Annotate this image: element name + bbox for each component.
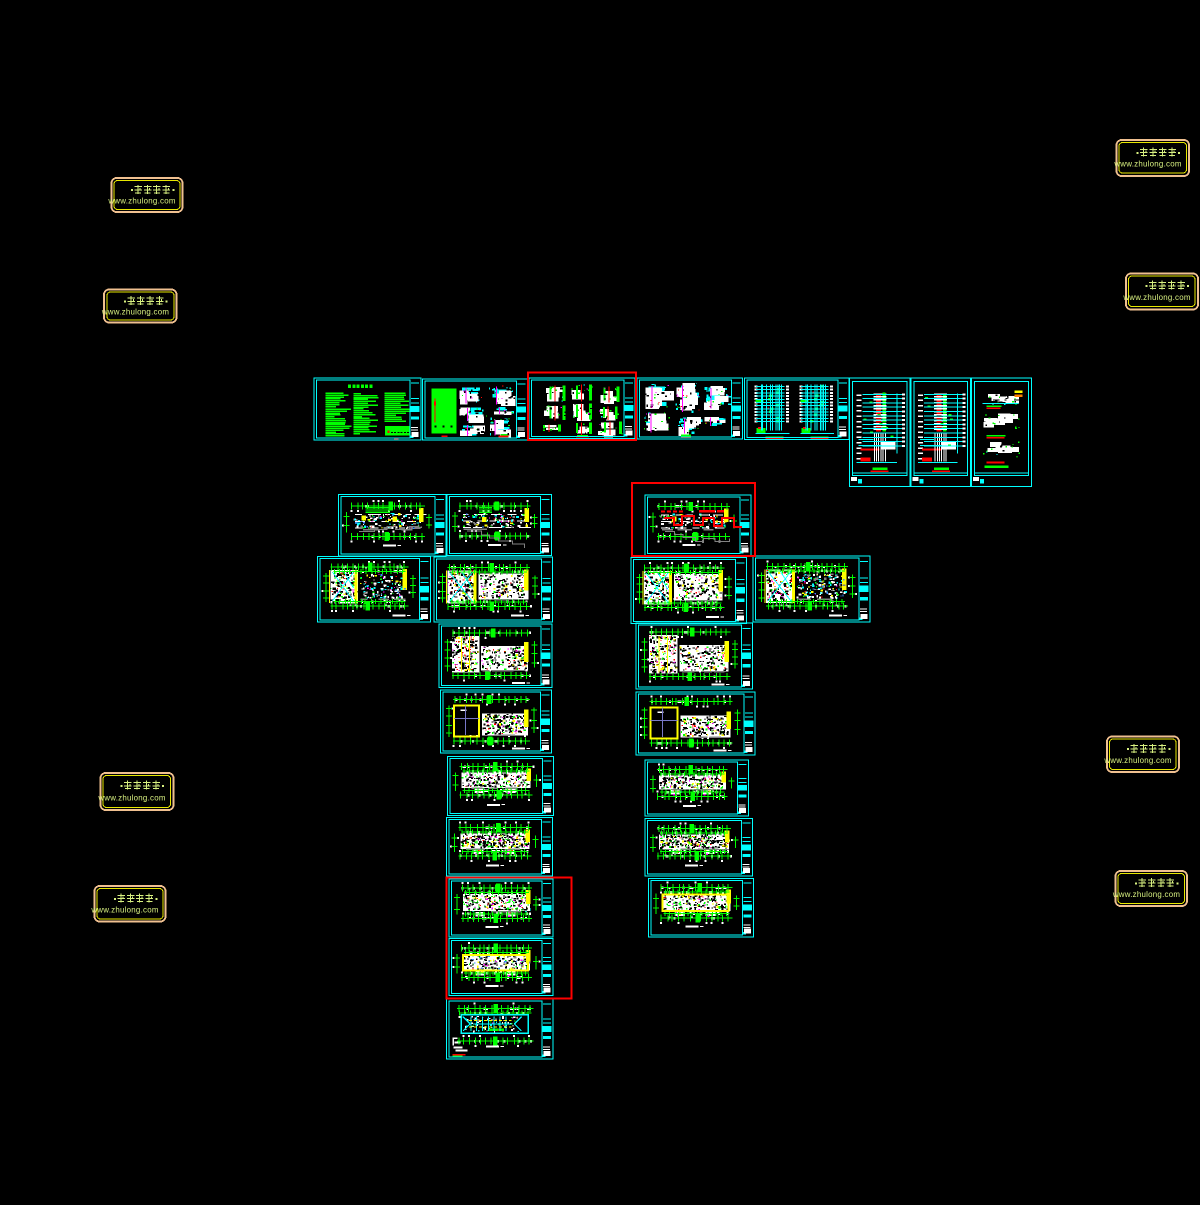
svg-text:www.zhulong.com: www.zhulong.com xyxy=(1122,293,1191,302)
svg-text:www.zhulong.com: www.zhulong.com xyxy=(107,197,176,206)
svg-text:www.zhulong.com: www.zhulong.com xyxy=(90,906,159,915)
svg-text:www.zhulong.com: www.zhulong.com xyxy=(1112,890,1181,899)
svg-text:www.zhulong.com: www.zhulong.com xyxy=(97,794,166,803)
svg-text:www.zhulong.com: www.zhulong.com xyxy=(1113,160,1182,169)
svg-text:www.zhulong.com: www.zhulong.com xyxy=(1103,756,1172,765)
svg-text:www.zhulong.com: www.zhulong.com xyxy=(101,308,170,317)
